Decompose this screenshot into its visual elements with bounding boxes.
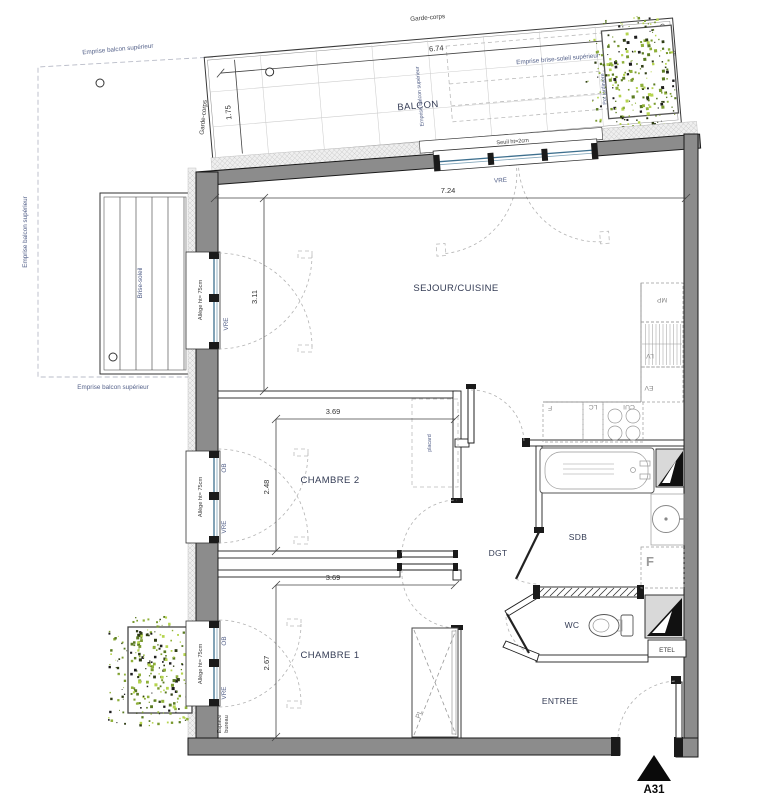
kitchen-lv-box	[641, 322, 683, 367]
floor-plan-drawing: Emprise balcon supérieur Emprise balcon …	[0, 0, 784, 800]
top-wall: Seuil ht=2cm VRE	[195, 120, 707, 274]
window-vre-label: VRE	[223, 318, 230, 331]
railing-post	[96, 79, 104, 87]
emprise-balcony-mid-label: Emprise balcon supérieur	[415, 66, 426, 127]
placard-chambre1: PL	[412, 628, 458, 737]
dgt-label: DGT	[489, 548, 508, 558]
sdb-label: SDB	[569, 532, 587, 542]
door-sejour-dgt	[466, 384, 524, 443]
duct-shaft-sdb	[656, 449, 684, 487]
espace-bureau-label-2: bureau	[224, 715, 230, 732]
dim-balcony-depth: 1.75	[220, 60, 243, 155]
hob-burner	[608, 409, 622, 423]
kitchen-mp-label: MP	[656, 296, 667, 303]
placard-label: placard	[427, 434, 433, 451]
floor-plan-page: Emprise balcon supérieur Emprise balcon …	[0, 0, 784, 800]
railing-top-label: Garde-corps	[410, 13, 445, 23]
door-sdb	[516, 532, 539, 584]
emprise-bottom-label: Emprise balcon supérieur	[77, 384, 148, 391]
entree-label: ENTREE	[542, 696, 578, 706]
kitchen-lv-label: LV	[646, 352, 654, 359]
placard-chambre2: placard	[412, 399, 458, 487]
espace-bureau-label-1: Espace	[217, 715, 223, 734]
door-entrance	[618, 676, 682, 738]
etel-label: ETEL	[659, 647, 675, 654]
dim-chambre2-depth: 2.48	[262, 419, 280, 555]
sdb-wc-hatched-wall	[533, 585, 644, 599]
entrance-arrow-icon	[637, 755, 671, 781]
hob-burner	[626, 426, 640, 440]
svg-text:3.11: 3.11	[250, 290, 259, 304]
sejour-label: SEJOUR/CUISINE	[413, 283, 498, 294]
chambre2-label: CHAMBRE 2	[300, 475, 359, 486]
kitchen-ev-label: EV	[644, 384, 654, 391]
svg-text:6.74: 6.74	[429, 43, 444, 53]
hob-burner	[608, 426, 622, 440]
kitchen-lc-label: LC	[589, 403, 598, 410]
window-ob-label: OB	[221, 636, 228, 645]
hob-burner	[626, 409, 640, 423]
door-chambre1	[397, 563, 458, 628]
svg-text:3.69: 3.69	[326, 573, 341, 582]
emprise-brise-soleil-label: Emprise brise-soleil supérieur	[516, 52, 599, 66]
svg-text:1.75: 1.75	[223, 105, 233, 120]
bathtub	[540, 448, 654, 493]
chambre1-label: CHAMBRE 1	[300, 650, 359, 661]
chambre2-window: Allège ht= 75cm OB VRE	[186, 449, 308, 544]
brise-soleil-label: Brise-soleil	[137, 268, 144, 299]
washbasin	[651, 494, 688, 545]
emprise-top-label: Emprise balcon supérieur	[82, 43, 154, 57]
chambre1-planter	[108, 616, 193, 727]
toilet	[589, 615, 633, 637]
window-vre-label: VRE	[221, 521, 228, 534]
window-vre-label: VRE	[494, 177, 507, 185]
svg-text:3.69: 3.69	[326, 407, 341, 416]
allege-label: Allège ht= 75cm	[198, 477, 204, 518]
door-chambre2	[397, 500, 458, 558]
entrance-marker-label: A31	[643, 784, 665, 796]
duct-shaft-wc	[645, 595, 684, 638]
kitchen-block: MP LV EV F LC CUI	[543, 283, 683, 442]
emprise-left-label: Emprise balcon supérieur	[22, 196, 29, 267]
kitchen-f-label: F	[548, 404, 552, 411]
allege-label: Allège ht= 75cm	[198, 644, 204, 685]
dim-chambre2-width: 3.69	[272, 407, 459, 423]
railing-post	[109, 353, 117, 361]
svg-text:7.24: 7.24	[441, 186, 456, 195]
dim-sejour-width: 7.24	[211, 186, 690, 202]
railing-post	[265, 68, 274, 77]
railing-left-label: Garde-corps	[199, 100, 209, 135]
wc-label: WC	[565, 620, 580, 630]
dim-sejour-depth: 3.11	[250, 194, 268, 395]
sdb-f-label: F	[646, 554, 654, 569]
allege-label: Allège ht= 75cm	[198, 280, 204, 321]
svg-text:2.48: 2.48	[262, 480, 271, 495]
etel-box: ETEL	[648, 640, 686, 657]
window-ob-label: OB	[221, 463, 228, 472]
dim-chambre1-depth: 2.67	[262, 585, 280, 741]
window-vre-label: VRE	[221, 687, 228, 700]
entrance-marker: A31	[637, 755, 671, 796]
bottom-wall	[188, 738, 620, 755]
sejour-window: Allège ht= 75cm VRE	[186, 251, 312, 352]
sdb-f-box: F	[641, 547, 684, 588]
svg-text:2.67: 2.67	[262, 656, 271, 671]
brise-soleil: Brise-soleil	[100, 193, 190, 374]
